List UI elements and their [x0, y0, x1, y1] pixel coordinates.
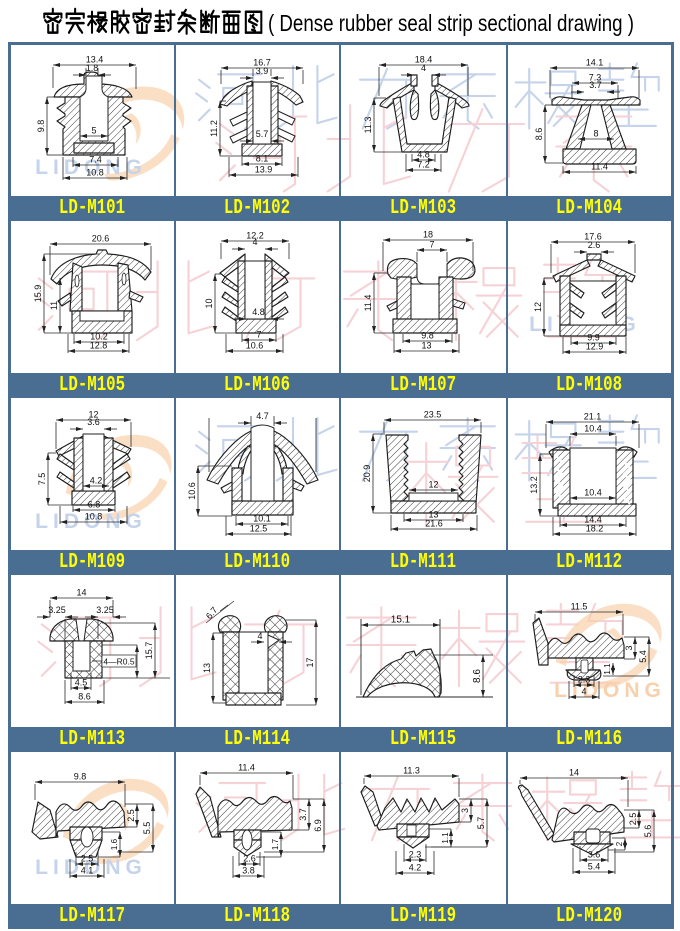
svg-text:2.5: 2.5 [628, 813, 638, 826]
svg-text:14: 14 [76, 588, 86, 598]
svg-text:15.9: 15.9 [33, 285, 43, 303]
svg-text:6.8: 6.8 [88, 500, 101, 510]
svg-text:9.8: 9.8 [74, 772, 87, 782]
svg-text:11.3: 11.3 [363, 117, 373, 134]
svg-text:5.5: 5.5 [142, 822, 152, 835]
svg-text:18.2: 18.2 [586, 524, 604, 534]
svg-text:1.1: 1.1 [603, 663, 612, 675]
svg-text:14: 14 [569, 768, 579, 778]
svg-text:10.4: 10.4 [584, 488, 602, 498]
svg-text:7: 7 [429, 240, 434, 250]
svg-text:8.6: 8.6 [534, 128, 544, 141]
svg-text:3.8: 3.8 [242, 866, 255, 876]
svg-text:14.1: 14.1 [586, 58, 604, 68]
svg-text:12: 12 [533, 302, 543, 312]
svg-text:11: 11 [49, 301, 59, 310]
svg-text:2: 2 [615, 841, 624, 846]
svg-text:20.9: 20.9 [362, 465, 372, 483]
svg-text:2.5: 2.5 [81, 854, 94, 864]
svg-text:18: 18 [423, 230, 433, 240]
svg-text:5.4: 5.4 [638, 650, 648, 663]
svg-text:3: 3 [624, 645, 634, 650]
svg-text:3.6: 3.6 [87, 417, 100, 427]
svg-text:5.7: 5.7 [256, 129, 269, 139]
svg-text:12.9: 12.9 [586, 342, 604, 352]
svg-text:2.6: 2.6 [243, 854, 256, 864]
svg-text:4.2: 4.2 [90, 476, 103, 486]
svg-text:12.8: 12.8 [90, 341, 108, 351]
svg-text:12.5: 12.5 [250, 524, 268, 534]
svg-text:11.4: 11.4 [591, 162, 608, 172]
svg-text:3.25: 3.25 [48, 605, 66, 615]
svg-text:7.2: 7.2 [417, 160, 430, 170]
svg-text:4: 4 [581, 687, 586, 697]
svg-text:3.7: 3.7 [589, 80, 602, 90]
svg-text:17: 17 [305, 657, 315, 667]
svg-text:7.5: 7.5 [37, 473, 47, 486]
svg-text:11.4: 11.4 [238, 763, 255, 773]
svg-text:10.6: 10.6 [246, 341, 264, 351]
svg-text:8: 8 [593, 129, 598, 139]
svg-text:4.8: 4.8 [417, 150, 430, 160]
svg-text:4.1: 4.1 [81, 866, 94, 876]
svg-text:21.6: 21.6 [425, 519, 443, 529]
svg-text:3.9: 3.9 [256, 66, 269, 76]
svg-text:4: 4 [421, 63, 426, 73]
svg-text:5.4: 5.4 [588, 862, 601, 872]
svg-text:5.6: 5.6 [643, 825, 653, 838]
svg-text:8.6: 8.6 [78, 692, 91, 702]
svg-text:10.1: 10.1 [253, 514, 271, 524]
svg-text:9.8: 9.8 [421, 331, 434, 341]
svg-text:2.6: 2.6 [588, 240, 601, 250]
svg-text:4.5: 4.5 [75, 678, 88, 688]
svg-text:10.8: 10.8 [85, 512, 103, 522]
svg-text:11.2: 11.2 [209, 120, 219, 137]
svg-text:4: 4 [257, 631, 262, 641]
svg-text:23.5: 23.5 [424, 410, 442, 420]
svg-text:13: 13 [202, 663, 212, 673]
svg-text:3.6: 3.6 [588, 850, 601, 860]
svg-text:11.5: 11.5 [571, 602, 588, 612]
svg-text:5: 5 [91, 126, 96, 136]
svg-text:3.7: 3.7 [298, 808, 308, 821]
svg-text:2.3: 2.3 [409, 850, 422, 860]
svg-text:( Dense rubber seal strip sect: ( Dense rubber seal strip sectional draw… [268, 10, 634, 36]
svg-text:2.3: 2.3 [578, 675, 591, 685]
svg-text:10: 10 [204, 298, 214, 308]
svg-text:1.7: 1.7 [271, 838, 280, 850]
svg-text:8.6: 8.6 [472, 669, 483, 683]
svg-text:15.1: 15.1 [391, 615, 411, 626]
svg-text:21.1: 21.1 [584, 412, 602, 422]
svg-text:4.8: 4.8 [252, 307, 265, 317]
svg-text:1.8: 1.8 [86, 63, 99, 73]
svg-text:20.6: 20.6 [92, 234, 110, 244]
svg-text:3.25: 3.25 [96, 605, 114, 615]
svg-text:9.8: 9.8 [36, 120, 46, 133]
svg-text:5.7: 5.7 [476, 817, 486, 830]
svg-text:1.1: 1.1 [441, 832, 450, 844]
svg-text:11.3: 11.3 [403, 766, 420, 776]
svg-text:13.2: 13.2 [529, 476, 539, 494]
svg-text:4—R0.5: 4—R0.5 [103, 657, 134, 667]
svg-text:15.7: 15.7 [144, 642, 154, 660]
svg-text:10.6: 10.6 [187, 482, 197, 500]
svg-text:13.9: 13.9 [255, 165, 273, 175]
svg-text:4.7: 4.7 [256, 411, 269, 421]
svg-text:3: 3 [460, 808, 470, 813]
svg-text:10.4: 10.4 [584, 424, 602, 434]
svg-text:10.8: 10.8 [86, 168, 104, 178]
svg-text:1.6: 1.6 [110, 838, 119, 850]
svg-text:11.4: 11.4 [363, 295, 373, 312]
svg-text:7: 7 [256, 330, 261, 340]
svg-text:6.9: 6.9 [313, 819, 323, 832]
svg-text:4: 4 [252, 237, 257, 247]
svg-text:2.5: 2.5 [126, 809, 136, 822]
svg-text:12: 12 [428, 480, 438, 490]
svg-text:4.2: 4.2 [409, 863, 422, 873]
svg-text:8.1: 8.1 [256, 154, 269, 164]
svg-text:13: 13 [421, 341, 431, 351]
svg-text:7.4: 7.4 [89, 155, 102, 165]
